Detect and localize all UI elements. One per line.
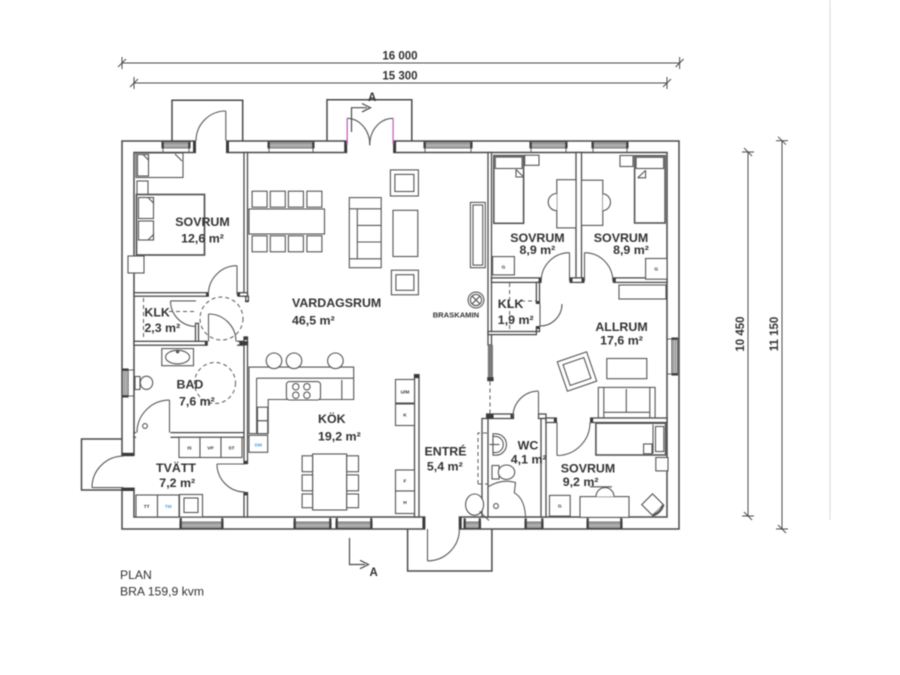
svg-text:K: K: [403, 413, 407, 419]
svg-text:PLAN: PLAN: [120, 568, 152, 582]
svg-text:U/M: U/M: [401, 390, 410, 396]
svg-text:2,3 m²: 2,3 m²: [144, 321, 180, 335]
svg-text:TM: TM: [165, 504, 172, 510]
svg-text:ENTRÉ: ENTRÉ: [425, 444, 467, 459]
svg-text:ST: ST: [228, 446, 234, 452]
svg-text:11 150: 11 150: [769, 317, 781, 352]
svg-text:A: A: [368, 92, 376, 104]
svg-text:KÖK: KÖK: [318, 411, 346, 426]
svg-text:8,9 m²: 8,9 m²: [519, 243, 555, 257]
svg-text:H: H: [403, 500, 407, 506]
svg-text:SOVRUM: SOVRUM: [561, 462, 615, 476]
svg-text:BRASKAMIN: BRASKAMIN: [433, 311, 479, 320]
svg-text:16 000: 16 000: [382, 51, 417, 63]
svg-text:BAD: BAD: [177, 378, 204, 392]
svg-text:9,2 m²: 9,2 m²: [563, 475, 599, 489]
svg-text:WC: WC: [518, 439, 539, 453]
svg-text:10 450: 10 450: [735, 316, 747, 351]
svg-text:19,2 m²: 19,2 m²: [318, 430, 361, 444]
svg-text:KLK: KLK: [498, 297, 524, 311]
svg-text:KLK: KLK: [144, 306, 170, 320]
svg-text:15 300: 15 300: [382, 71, 417, 83]
svg-text:DM: DM: [255, 443, 262, 449]
svg-text:7,2 m²: 7,2 m²: [159, 476, 195, 490]
svg-text:17,6 m²: 17,6 m²: [600, 334, 643, 348]
svg-text:A: A: [370, 567, 378, 579]
svg-text:TVÄTT: TVÄTT: [156, 460, 196, 475]
svg-text:4,1 m²: 4,1 m²: [511, 453, 547, 467]
svg-text:1,9 m²: 1,9 m²: [498, 313, 534, 327]
svg-text:12,6 m²: 12,6 m²: [181, 232, 224, 246]
svg-text:7,6 m²: 7,6 m²: [179, 395, 215, 409]
svg-text:8,9 m²: 8,9 m²: [613, 243, 649, 257]
svg-text:G: G: [558, 504, 562, 510]
svg-text:46,5 m²: 46,5 m²: [292, 314, 335, 328]
svg-text:TT: TT: [144, 504, 150, 510]
svg-text:IS: IS: [187, 446, 192, 452]
svg-text:G: G: [654, 267, 658, 273]
svg-text:ALLRUM: ALLRUM: [595, 320, 647, 334]
svg-text:F: F: [404, 479, 407, 485]
svg-text:VARDAGSRUM: VARDAGSRUM: [292, 296, 381, 310]
svg-text:G: G: [502, 265, 506, 271]
svg-text:VP: VP: [207, 446, 214, 452]
svg-text:5,4 m²: 5,4 m²: [427, 460, 463, 474]
svg-text:SOVRUM: SOVRUM: [175, 215, 229, 229]
svg-text:BRA 159,9 kvm: BRA 159,9 kvm: [120, 585, 204, 599]
